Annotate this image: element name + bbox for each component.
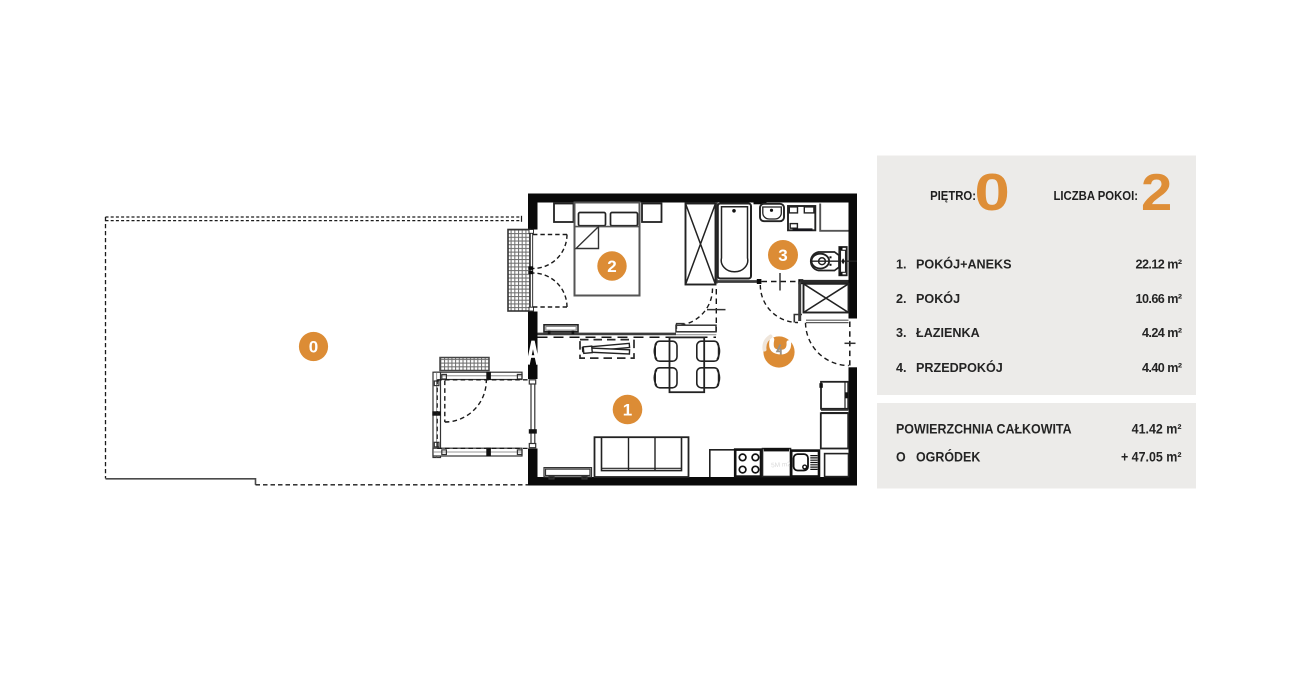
- svg-text:2.: 2.: [896, 292, 907, 306]
- svg-text:41.42 m²: 41.42 m²: [1132, 421, 1182, 437]
- svg-text:4.: 4.: [896, 361, 907, 375]
- svg-text:2: 2: [1141, 164, 1172, 222]
- svg-text:POKÓJ+ANEKS: POKÓJ+ANEKS: [916, 257, 1012, 272]
- svg-text:POKÓJ: POKÓJ: [916, 291, 960, 306]
- svg-text:1: 1: [623, 401, 632, 420]
- svg-text:+ 47.05 m²: + 47.05 m²: [1121, 449, 1182, 465]
- svg-text:2: 2: [607, 257, 616, 276]
- svg-text:PIĘTRO:: PIĘTRO:: [930, 188, 976, 203]
- svg-text:LICZBA POKOI:: LICZBA POKOI:: [1053, 188, 1138, 203]
- svg-text:PRZEDPOKÓJ: PRZEDPOKÓJ: [916, 360, 1003, 375]
- svg-text:5M m2: 5M m2: [771, 461, 792, 469]
- svg-text:22.12 m²: 22.12 m²: [1135, 258, 1181, 272]
- svg-text:4.40 m²: 4.40 m²: [1142, 361, 1182, 375]
- svg-text:0: 0: [975, 164, 1010, 222]
- svg-text:4.24 m²: 4.24 m²: [1142, 326, 1182, 340]
- svg-text:10.66 m²: 10.66 m²: [1135, 292, 1181, 306]
- svg-text:ŁAZIENKA: ŁAZIENKA: [916, 326, 980, 340]
- svg-text:0: 0: [309, 338, 318, 357]
- svg-text:3.: 3.: [896, 326, 907, 340]
- svg-text:OGRÓDEK: OGRÓDEK: [916, 449, 981, 465]
- svg-text:POWIERZCHNIA CAŁKOWITA: POWIERZCHNIA CAŁKOWITA: [896, 421, 1072, 437]
- svg-text:3: 3: [778, 246, 787, 265]
- svg-text:1.: 1.: [896, 258, 907, 272]
- svg-text:O: O: [896, 449, 906, 465]
